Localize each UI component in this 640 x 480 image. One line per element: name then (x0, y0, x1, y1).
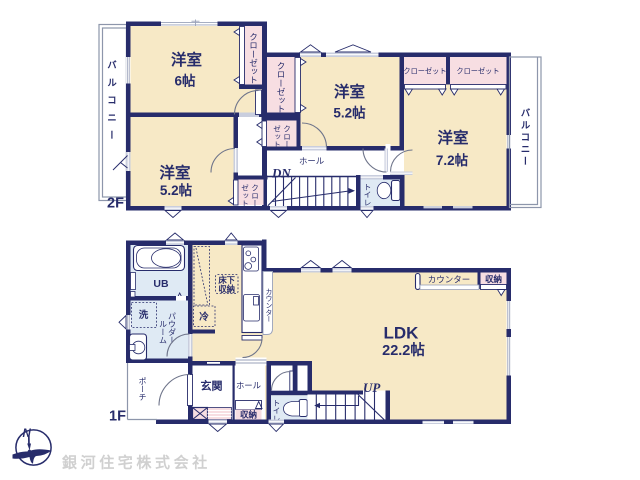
svg-text:UP: UP (363, 380, 381, 395)
svg-text:ルーム: ルーム (159, 320, 168, 344)
svg-text:カウンター: カウンター (428, 275, 471, 285)
svg-text:クロー: クロー (251, 184, 260, 207)
svg-text:2F: 2F (107, 196, 124, 212)
svg-text:冷: 冷 (199, 311, 209, 323)
svg-text:洋室: 洋室 (171, 50, 202, 69)
svg-text:クローゼット: クローゼット (276, 61, 286, 113)
svg-text:クロー: クロー (283, 125, 292, 148)
svg-text:ホール: ホール (236, 381, 261, 391)
svg-text:22.2帖: 22.2帖 (382, 341, 425, 359)
svg-text:ポーチ: ポーチ (138, 377, 147, 401)
svg-text:N: N (23, 428, 32, 440)
svg-text:7.2帖: 7.2帖 (436, 152, 469, 168)
svg-text:玄関: 玄関 (201, 379, 223, 393)
svg-text:DN: DN (271, 166, 291, 181)
svg-text:6帖: 6帖 (174, 73, 196, 89)
svg-text:洋室: 洋室 (334, 82, 365, 101)
svg-text:ゼット: ゼット (272, 125, 281, 148)
svg-text:1F: 1F (109, 409, 126, 425)
svg-text:トイレ: トイレ (363, 183, 372, 206)
svg-text:クローゼット: クローゼット (456, 67, 499, 76)
svg-text:クローゼット: クローゼット (249, 32, 259, 84)
svg-text:収納: 収納 (240, 410, 257, 420)
svg-text:洋室: 洋室 (437, 128, 468, 147)
svg-text:バルコニー: バルコニー (519, 108, 531, 168)
svg-text:収納: 収納 (485, 274, 502, 284)
svg-text:トイレ: トイレ (272, 399, 281, 422)
svg-text:LDK: LDK (384, 324, 420, 343)
svg-text:収納: 収納 (218, 284, 235, 294)
svg-text:5.2帖: 5.2帖 (333, 105, 366, 121)
svg-text:クローゼット: クローゼット (403, 67, 446, 76)
svg-text:ゼット: ゼット (240, 184, 249, 207)
svg-text:洗: 洗 (139, 309, 149, 321)
svg-text:洋室: 洋室 (159, 163, 190, 182)
svg-text:バルコニー: バルコニー (105, 60, 117, 148)
svg-text:銀河住宅株式会社: 銀河住宅株式会社 (62, 454, 211, 472)
svg-text:UB: UB (153, 278, 169, 290)
svg-text:5.2帖: 5.2帖 (160, 182, 193, 198)
svg-text:ホール: ホール (299, 156, 324, 166)
